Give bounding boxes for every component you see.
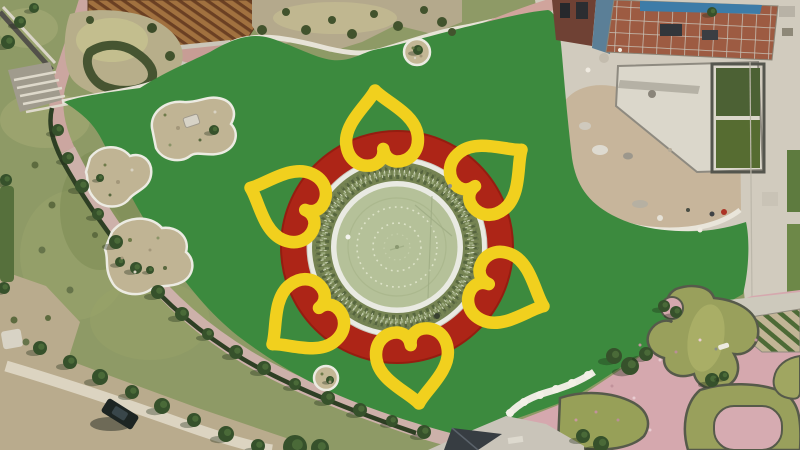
- site-junk: [599, 53, 609, 63]
- detail-dot: [347, 29, 357, 39]
- site-junk: [632, 200, 648, 208]
- detail-dot: [586, 68, 591, 73]
- detail-dot: [104, 164, 107, 167]
- detail-dot: [131, 169, 134, 172]
- tree-canopy-highlight: [581, 431, 587, 437]
- tree-canopy-highlight: [192, 415, 198, 421]
- detail-dot: [659, 359, 662, 362]
- tree-canopy-highlight: [224, 429, 231, 436]
- tree-canopy-highlight: [38, 343, 44, 349]
- detail-dot: [420, 55, 423, 58]
- detail-dot: [39, 247, 46, 254]
- tree-canopy-highlight: [329, 377, 333, 381]
- detail-dot: [282, 8, 290, 16]
- detail-dot: [414, 57, 416, 59]
- edge-planter: [787, 150, 800, 212]
- tree-canopy-highlight: [723, 373, 728, 378]
- tree-canopy-highlight: [2, 284, 7, 289]
- site-junk: [579, 122, 591, 130]
- tree-canopy-highlight: [80, 181, 86, 187]
- tree-canopy-highlight: [68, 357, 74, 363]
- tree-canopy-highlight: [422, 427, 428, 433]
- tree-canopy-highlight: [644, 349, 650, 355]
- detail-dot: [393, 21, 403, 31]
- detail-dot: [649, 429, 652, 432]
- tree-canopy-highlight: [675, 308, 680, 313]
- island-e: [314, 366, 338, 390]
- detail-dot: [121, 257, 124, 260]
- island-a: [152, 98, 236, 161]
- tree-canopy-highlight: [213, 127, 218, 132]
- tree-canopy-highlight: [130, 387, 136, 393]
- detail-dot: [420, 6, 428, 14]
- scallop-bump: [520, 398, 528, 406]
- detail-dot: [434, 313, 440, 319]
- detail-dot: [147, 23, 157, 33]
- tree-canopy-highlight: [180, 309, 186, 315]
- tree-canopy-highlight: [292, 439, 303, 450]
- scallop-bump: [506, 409, 514, 417]
- tree-canopy-highlight: [599, 439, 606, 446]
- detail-dot: [32, 162, 39, 169]
- detail-dot: [699, 339, 702, 342]
- detail-dot: [710, 212, 715, 217]
- tree-canopy-highlight: [711, 9, 716, 14]
- detail-dot: [301, 25, 311, 35]
- water-tank: [716, 68, 760, 116]
- tree-canopy-highlight: [19, 18, 24, 23]
- tree-canopy-highlight: [262, 363, 268, 369]
- tree-canopy-highlight: [391, 417, 396, 422]
- detail-dot: [715, 348, 718, 351]
- water-tank: [716, 120, 760, 168]
- pond-island-pink: [714, 406, 782, 450]
- tree-canopy-highlight: [256, 441, 262, 447]
- tree-canopy-highlight: [234, 347, 240, 353]
- detail-dot: [169, 144, 172, 147]
- detail-dot: [163, 266, 167, 270]
- scallop-bump: [568, 379, 576, 387]
- floor-opening: [702, 30, 718, 40]
- detail-dot: [67, 287, 74, 294]
- detail-dot: [686, 208, 690, 212]
- detail-dot: [412, 47, 415, 50]
- detail-dot: [149, 249, 152, 252]
- tree-canopy-highlight: [33, 5, 38, 10]
- detail-dot: [92, 232, 98, 238]
- scene: [0, 0, 800, 450]
- tree-canopy-highlight: [57, 126, 62, 131]
- detail-dot: [448, 28, 456, 36]
- tree-canopy-highlight: [358, 405, 364, 411]
- tower-window: [576, 2, 588, 19]
- floor-opening: [660, 24, 682, 36]
- left-hedge: [0, 186, 14, 282]
- building-tower: [552, 0, 596, 46]
- detail-dot: [128, 238, 132, 242]
- detail-dot: [257, 25, 267, 35]
- site-junk: [648, 90, 656, 98]
- detail-dot: [328, 16, 336, 24]
- detail-dot: [633, 397, 636, 400]
- detail-dot: [134, 271, 137, 274]
- detail-dot: [176, 126, 180, 130]
- detail-dot: [639, 344, 642, 347]
- detail-dot: [199, 139, 202, 142]
- building-debris: [782, 28, 793, 36]
- detail-dot: [575, 419, 578, 422]
- detail-dot: [86, 16, 94, 24]
- tree-canopy-highlight: [160, 401, 167, 408]
- bench: [1, 328, 24, 349]
- tree-canopy-highlight: [6, 37, 12, 43]
- tree-canopy-highlight: [67, 154, 72, 159]
- scallop-bump: [536, 391, 544, 399]
- detail-dot: [448, 184, 452, 188]
- detail-dot: [109, 194, 112, 197]
- detail-dot: [346, 235, 351, 240]
- tree-canopy-highlight: [97, 210, 102, 215]
- detail-dot: [721, 209, 727, 215]
- tree-canopy-highlight: [326, 393, 332, 399]
- tree-canopy-highlight: [5, 176, 10, 181]
- detail-dot: [617, 419, 620, 422]
- detail-dot: [165, 51, 175, 61]
- building-debris: [779, 6, 795, 17]
- detail-dot: [668, 148, 672, 152]
- detail-dot: [23, 339, 30, 346]
- tree-canopy-highlight: [98, 372, 105, 379]
- tree-canopy-highlight: [612, 351, 619, 358]
- detail-dot: [11, 317, 18, 324]
- tree-canopy-highlight: [135, 264, 140, 269]
- detail-dot: [164, 114, 167, 117]
- tree-canopy-highlight: [119, 259, 124, 264]
- tree-canopy-highlight: [149, 267, 153, 271]
- aerial-park-photo: [0, 0, 800, 450]
- detail-dot: [49, 202, 56, 209]
- detail-dot: [370, 10, 378, 18]
- scallop-bump: [584, 371, 592, 379]
- detail-dot: [321, 373, 324, 376]
- detail-dot: [755, 339, 758, 342]
- tree-canopy-highlight: [663, 302, 668, 307]
- scallop-bump: [552, 385, 560, 393]
- detail-dot: [116, 180, 120, 184]
- site-junk: [623, 153, 633, 160]
- tree-canopy-highlight: [628, 360, 636, 368]
- detail-dot: [214, 111, 217, 114]
- detail-dot: [329, 381, 332, 384]
- detail-dot: [657, 215, 663, 221]
- tree-canopy-highlight: [99, 175, 103, 179]
- site-junk: [592, 145, 608, 155]
- tree-canopy-highlight: [114, 237, 120, 243]
- detail-dot: [437, 17, 447, 27]
- tree-canopy-highlight: [417, 47, 422, 52]
- detail-dot: [675, 351, 678, 354]
- detail-dot: [595, 411, 598, 414]
- tree-canopy-highlight: [207, 330, 212, 335]
- detail-dot: [45, 315, 51, 321]
- tree-canopy-highlight: [156, 287, 162, 293]
- tower-window: [560, 3, 570, 18]
- detail-dot: [611, 385, 614, 388]
- detail-dot: [157, 237, 160, 240]
- tree-canopy-highlight: [294, 380, 299, 385]
- edge-box: [762, 192, 778, 206]
- detail-dot: [698, 228, 703, 233]
- detail-dot: [395, 245, 399, 249]
- tree-canopy-highlight: [318, 442, 326, 450]
- detail-dot: [618, 48, 622, 52]
